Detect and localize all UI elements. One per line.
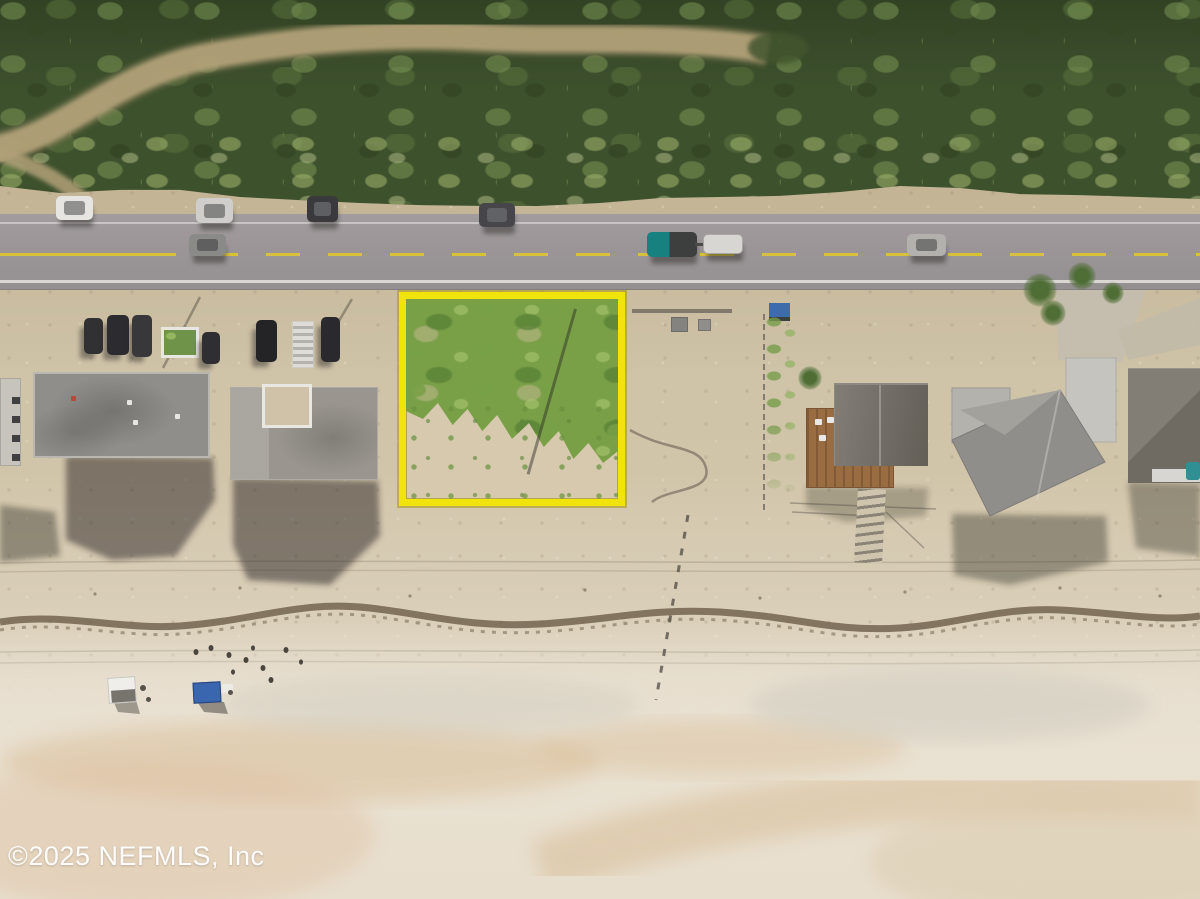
beach-canopy-white [107,676,137,704]
left-edge-building-windows [12,385,20,461]
teal-vehicle-east [1186,462,1200,480]
erosion-line [630,430,707,502]
deck-furniture [827,417,834,423]
roof-vent [175,414,180,419]
white-trailer [703,234,743,254]
wrack-line [0,586,1200,636]
car-windows [204,204,225,218]
parked-car-silver [196,198,233,223]
deck-furniture [815,419,822,425]
deck-furniture [819,435,826,441]
dune-boardwalk [292,321,314,368]
roof-ridge [879,385,881,466]
teal-pickup-truck [647,232,697,257]
driveway-car-dark [84,318,103,354]
palm-tree [798,366,822,390]
debris-dots [93,586,1161,599]
driveway-car-dark [321,317,340,362]
gabled-roof-house [834,383,928,466]
beach-access-stairs [854,488,886,563]
roof-courtyard-inset [262,384,312,428]
palm-tree [1068,262,1096,290]
driveway-car-dark [107,315,129,355]
beach-gear [228,690,233,695]
canopy-shade [111,689,136,703]
bench [698,319,711,331]
grass-strip [766,315,800,515]
roof-vent [127,400,132,405]
parked-car-white [56,196,93,220]
copyright-watermark: ©2025 NEFMLS, Inc [8,841,265,872]
roof-vent [133,420,138,425]
parked-car-dark [307,196,338,222]
roof-vent-red [71,396,76,401]
driveway-car-dark [132,315,152,357]
walkway-rail [632,309,732,313]
car-windows [197,239,218,251]
driving-car-gray [189,234,226,256]
parked-car-dark [479,203,515,227]
left-edge-building [0,378,21,466]
flat-roof-house-center [230,387,378,480]
property-fence [763,314,765,510]
beach-gear [146,697,151,702]
dune-planter [161,327,199,358]
car-windows [64,201,85,214]
palm-tree [1102,282,1124,304]
beach-canopy-blue [192,681,221,703]
driveway-car-dark [256,320,277,362]
driving-car-silver [907,234,946,256]
aerial-photo: ©2025 NEFMLS, Inc [0,0,1200,899]
bench [671,317,688,332]
car-windows [916,239,938,251]
large-gray-house [945,350,1120,520]
beach-gear [140,685,146,691]
flat-roof-house-west [33,372,210,458]
car-windows [314,202,331,217]
palm-tree [1040,300,1066,326]
car-windows [487,208,507,221]
highlighted-lot-boundary [399,292,625,506]
driveway-car-dark [202,332,220,364]
lot-sand-tufts [406,403,618,499]
